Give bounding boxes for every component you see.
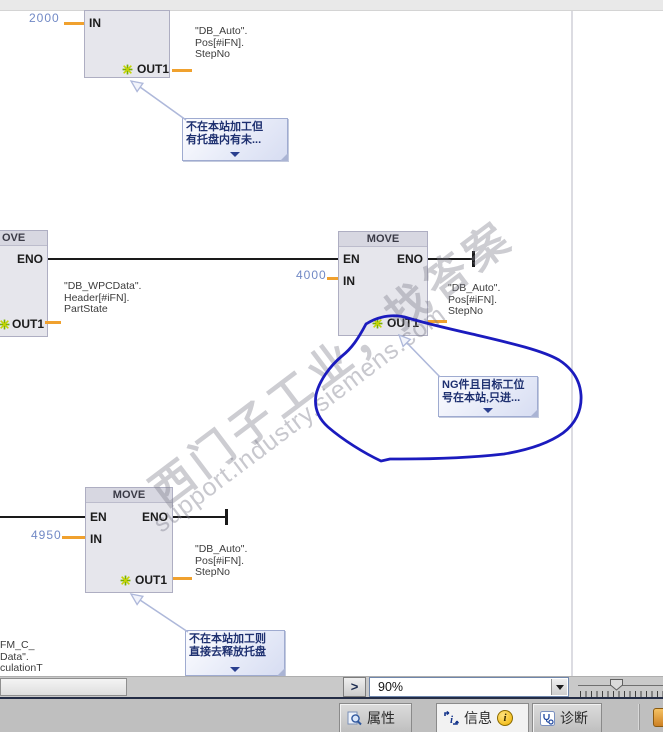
- zoom-slider-handle[interactable]: [610, 679, 624, 691]
- operand-value[interactable]: 4950: [31, 528, 62, 542]
- horizontal-scrollbar-thumb[interactable]: [0, 678, 127, 696]
- tab-diagnostics[interactable]: 诊断: [532, 703, 602, 732]
- wire-in: [62, 536, 85, 539]
- wire-eno: [173, 516, 227, 518]
- wire-eno-en: [48, 258, 338, 260]
- editor-right-divider: [571, 10, 573, 676]
- comment-connector-3: [140, 600, 188, 632]
- inspector-tab-bar: 属性 i 信息 i 诊断: [0, 699, 663, 732]
- tab-bar-separator: [638, 704, 640, 730]
- pin-en: EN: [90, 511, 107, 524]
- block-title: OVE: [0, 231, 47, 246]
- info-icon: i: [444, 711, 459, 726]
- move-block-3[interactable]: MOVE EN ENO IN OUT1: [85, 487, 173, 593]
- pin-in: IN: [89, 17, 101, 30]
- clipped-orange-icon[interactable]: [653, 708, 663, 727]
- conversion-star-icon: [0, 319, 10, 330]
- conversion-star-icon: [120, 575, 131, 586]
- operand-value[interactable]: 2000: [29, 11, 60, 25]
- tab-info-label: 信息: [464, 708, 492, 728]
- zoom-level-value: 90%: [378, 680, 403, 694]
- network-comment-2[interactable]: NG件且目标工位 号在本站,只进...: [438, 376, 538, 417]
- move-block-1[interactable]: IN OUT1: [84, 10, 170, 78]
- comment-fold-corner: [530, 409, 538, 417]
- pin-out1: OUT1: [135, 574, 167, 587]
- pin-out1: OUT1: [387, 317, 419, 330]
- wire-out: [172, 69, 192, 72]
- tia-portal-fbd-editor: 2000 IN OUT1 "DB_Auto". Pos[#iFN]. StepN…: [0, 0, 663, 732]
- pin-en: EN: [343, 253, 360, 266]
- operand-target[interactable]: "DB_Auto". Pos[#iFN]. StepNo: [195, 544, 247, 579]
- wire-endpoint: [472, 251, 475, 267]
- operand-partial-left[interactable]: FM_C_ Data". culationT: [0, 640, 43, 675]
- wire-out: [45, 321, 61, 324]
- block-title: MOVE: [339, 232, 427, 247]
- expand-comment-arrow[interactable]: [483, 408, 493, 413]
- pin-out1: OUT1: [137, 63, 169, 76]
- wire-in: [64, 22, 84, 25]
- zoom-dropdown-button[interactable]: [551, 679, 567, 695]
- block-title: MOVE: [86, 488, 172, 503]
- operand-value[interactable]: 4000: [296, 268, 327, 282]
- expand-comment-arrow[interactable]: [230, 667, 240, 672]
- wire-en: [0, 516, 85, 518]
- pin-eno: ENO: [17, 253, 43, 266]
- pin-eno: ENO: [142, 511, 168, 524]
- wire-in: [327, 277, 338, 280]
- properties-magnifier-icon: [347, 711, 362, 726]
- editor-bottom-bar: > 90%: [0, 676, 663, 697]
- pin-in: IN: [343, 275, 355, 288]
- tab-properties[interactable]: 属性: [339, 703, 412, 732]
- wire-out: [428, 320, 447, 323]
- info-alert-badge-icon[interactable]: i: [497, 710, 513, 726]
- comment-fold-corner: [277, 668, 285, 676]
- tab-info[interactable]: i 信息 i: [436, 703, 529, 732]
- operand-target[interactable]: "DB_WPCData". Header[#iFN]. PartState: [64, 281, 141, 316]
- comment-arrowhead-3: [131, 594, 143, 605]
- tab-properties-label: 属性: [367, 708, 395, 728]
- move-block-2[interactable]: MOVE EN ENO IN OUT1: [338, 231, 428, 336]
- operand-target[interactable]: "DB_Auto". Pos[#iFN]. StepNo: [448, 283, 500, 318]
- annotation-overlay: [0, 0, 663, 732]
- comment-fold-corner: [280, 153, 288, 161]
- wire-endpoint: [225, 509, 228, 525]
- comment-connector-1: [140, 87, 186, 120]
- pin-eno: ENO: [397, 253, 423, 266]
- wire-out: [173, 577, 192, 580]
- wire-eno: [428, 258, 474, 260]
- conversion-star-icon: [122, 64, 133, 75]
- conversion-star-icon: [372, 318, 383, 329]
- operand-target[interactable]: "DB_Auto". Pos[#iFN]. StepNo: [195, 26, 247, 61]
- comment-arrowhead-1: [131, 81, 143, 92]
- move-block-2-left-partial[interactable]: OVE ENO OUT1: [0, 230, 48, 337]
- tab-diagnostics-label: 诊断: [560, 708, 588, 728]
- comment-connector-2: [407, 343, 440, 377]
- pin-in: IN: [90, 533, 102, 546]
- expand-panel-button[interactable]: >: [343, 677, 366, 697]
- diagnostics-stethoscope-icon: [540, 711, 555, 726]
- pin-out1: OUT1: [12, 318, 44, 331]
- zoom-level-combobox[interactable]: 90%: [369, 677, 569, 697]
- comment-arrowhead-2: [399, 335, 410, 346]
- expand-comment-arrow[interactable]: [230, 152, 240, 157]
- network-comment-3[interactable]: 不在本站加工则 直接去释放托盘: [185, 630, 285, 676]
- network-comment-1[interactable]: 不在本站加工但 有托盘内有未...: [182, 118, 288, 161]
